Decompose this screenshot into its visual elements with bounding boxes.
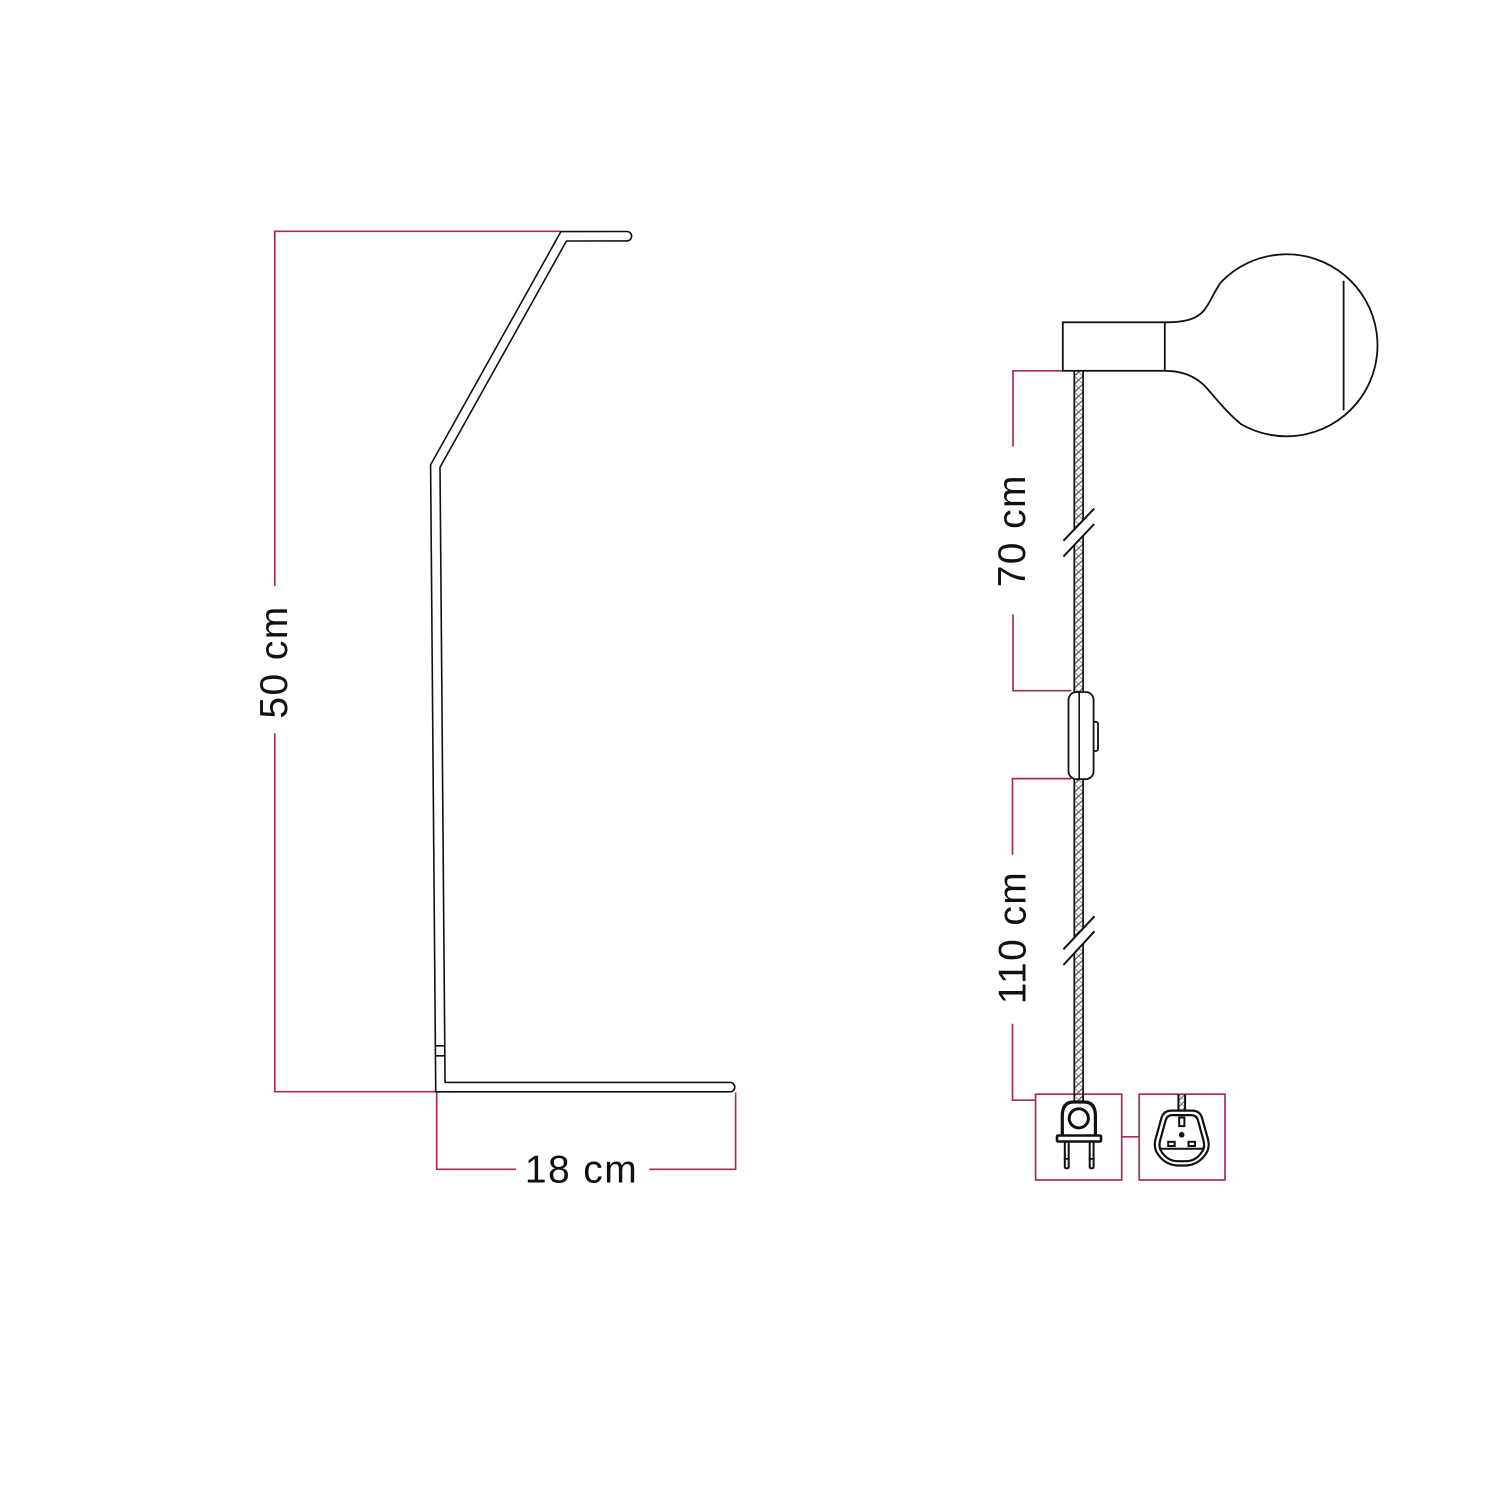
svg-text:70 cm: 70 cm — [991, 474, 1034, 587]
svg-text:110 cm: 110 cm — [991, 871, 1034, 1004]
svg-text:18 cm: 18 cm — [525, 1149, 638, 1192]
svg-text:50 cm: 50 cm — [253, 605, 296, 718]
